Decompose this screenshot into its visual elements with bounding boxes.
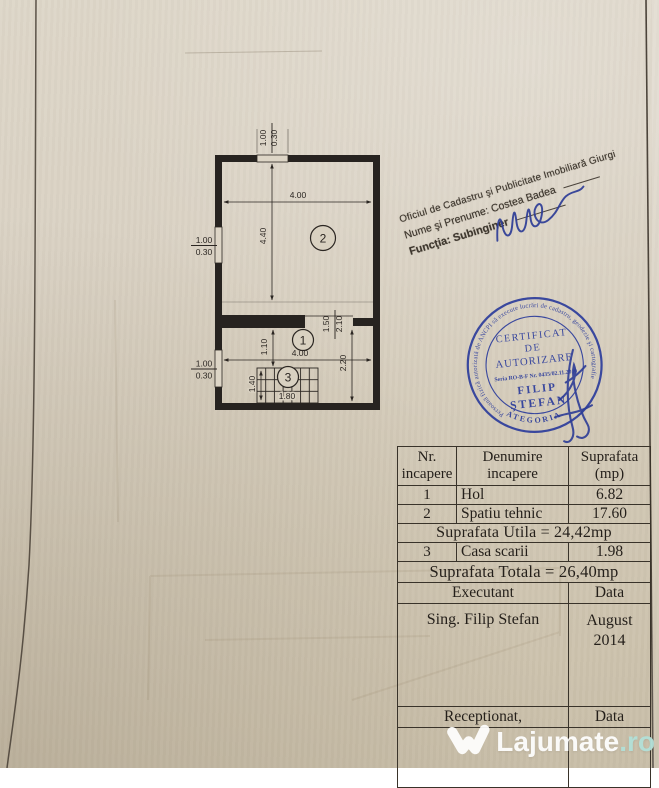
executant-date-month: August: [569, 611, 650, 631]
dim-window-left-upper-d: 0.30: [196, 247, 213, 257]
table-row: 1 Hol 6.82: [398, 486, 651, 505]
dim-window-left-upper-w: 1.00: [196, 235, 213, 245]
row1-name: Hol: [457, 486, 569, 505]
dim-window-left-lower-w: 1.00: [196, 359, 213, 369]
dim-stairs-depth: 1.40: [247, 375, 257, 392]
suprafata-utila-text: Suprafata Utila = 24,42mp: [398, 524, 651, 543]
dim-window-left-lower-d: 0.30: [196, 371, 213, 381]
executant-name-row: Sing. Filip Stefan August 2014: [398, 604, 651, 707]
watermark-text: Lajumate.ro: [496, 726, 655, 758]
executant-row: Executant Data: [398, 583, 651, 604]
table-row: 2 Spatiu tehnic 17.60: [398, 505, 651, 524]
col-header-nr-line2: incapere: [398, 466, 456, 483]
col-header-denumire: Denumire incapere: [457, 447, 569, 486]
table-row: 3 Casa scarii 1.98: [398, 543, 651, 562]
col-header-denumire-line1: Denumire: [457, 449, 568, 466]
col-header-nr-line1: Nr.: [398, 449, 456, 466]
handwritten-signature-2: [544, 340, 618, 456]
suprafata-utila-row: Suprafata Utila = 24,42mp: [398, 524, 651, 543]
executant-name: Sing. Filip Stefan: [398, 604, 569, 707]
col-header-suprafata-line2: (mp): [569, 466, 650, 483]
lajumate-logo-icon: [445, 721, 491, 763]
col-header-suprafata-line1: Suprafata: [569, 449, 650, 466]
row1-area: 6.82: [569, 486, 651, 505]
executant-label: Executant: [398, 583, 569, 604]
row2-name: Spatiu tehnic: [457, 505, 569, 524]
window-top: [257, 155, 288, 162]
dim-window-top-d: 0.30: [269, 129, 279, 146]
window-left-upper: [215, 227, 222, 263]
scanned-page: 4.00 4.40 4.00 1.10 2.20 1.50 2.10 1.40 …: [0, 0, 659, 768]
row2-nr: 2: [398, 505, 457, 524]
watermark-suffix: .ro: [619, 726, 655, 757]
executant-date-year: 2014: [569, 631, 650, 651]
left-page-border: [7, 0, 36, 768]
dim-stairs-width: 1.80: [279, 391, 296, 401]
room-3-number: 3: [285, 371, 292, 385]
dim-room2-width: 4.00: [290, 190, 307, 200]
col-header-suprafata: Suprafata (mp): [569, 447, 651, 486]
floor-plan: 4.00 4.40 4.00 1.10 2.20 1.50 2.10 1.40 …: [188, 115, 398, 420]
row3-name: Casa scarii: [457, 543, 569, 562]
row3-nr: 3: [398, 543, 457, 562]
window-left-lower: [215, 350, 222, 387]
row2-area: 17.60: [569, 505, 651, 524]
executant-date: August 2014: [569, 604, 651, 707]
col-header-denumire-line2: incapere: [457, 466, 568, 483]
lajumate-watermark: Lajumate.ro: [445, 721, 655, 763]
dim-room2-depth: 4.40: [258, 227, 268, 244]
col-header-nr: Nr. incapere: [398, 447, 457, 486]
dim-hall-depth: 1.10: [259, 338, 269, 355]
watermark-brand: Lajumate: [496, 726, 619, 757]
room-labels: 2 1 3: [278, 226, 336, 388]
executant-data-label: Data: [569, 583, 651, 604]
room-1-number: 1: [300, 334, 307, 348]
right-edge-strip: [652, 0, 659, 768]
windows: [215, 155, 288, 387]
dim-right-depth: 2.20: [338, 354, 348, 371]
dim-window-top-w: 1.00: [258, 129, 268, 146]
row3-area: 1.98: [569, 543, 651, 562]
suprafata-totala-text: Suprafata Totala = 26,40mp: [398, 562, 651, 583]
room-2-number: 2: [320, 232, 327, 246]
row1-nr: 1: [398, 486, 457, 505]
stamp-de: DE: [524, 342, 542, 355]
interior-walls: [222, 315, 373, 328]
suprafata-totala-row: Suprafata Totala = 26,40mp: [398, 562, 651, 583]
table-header-row: Nr. incapere Denumire incapere Suprafata…: [398, 447, 651, 486]
dim-opening-height: 2.10: [334, 315, 344, 332]
top-fold-line: [185, 51, 322, 53]
dim-opening-width: 1.50: [321, 315, 331, 332]
